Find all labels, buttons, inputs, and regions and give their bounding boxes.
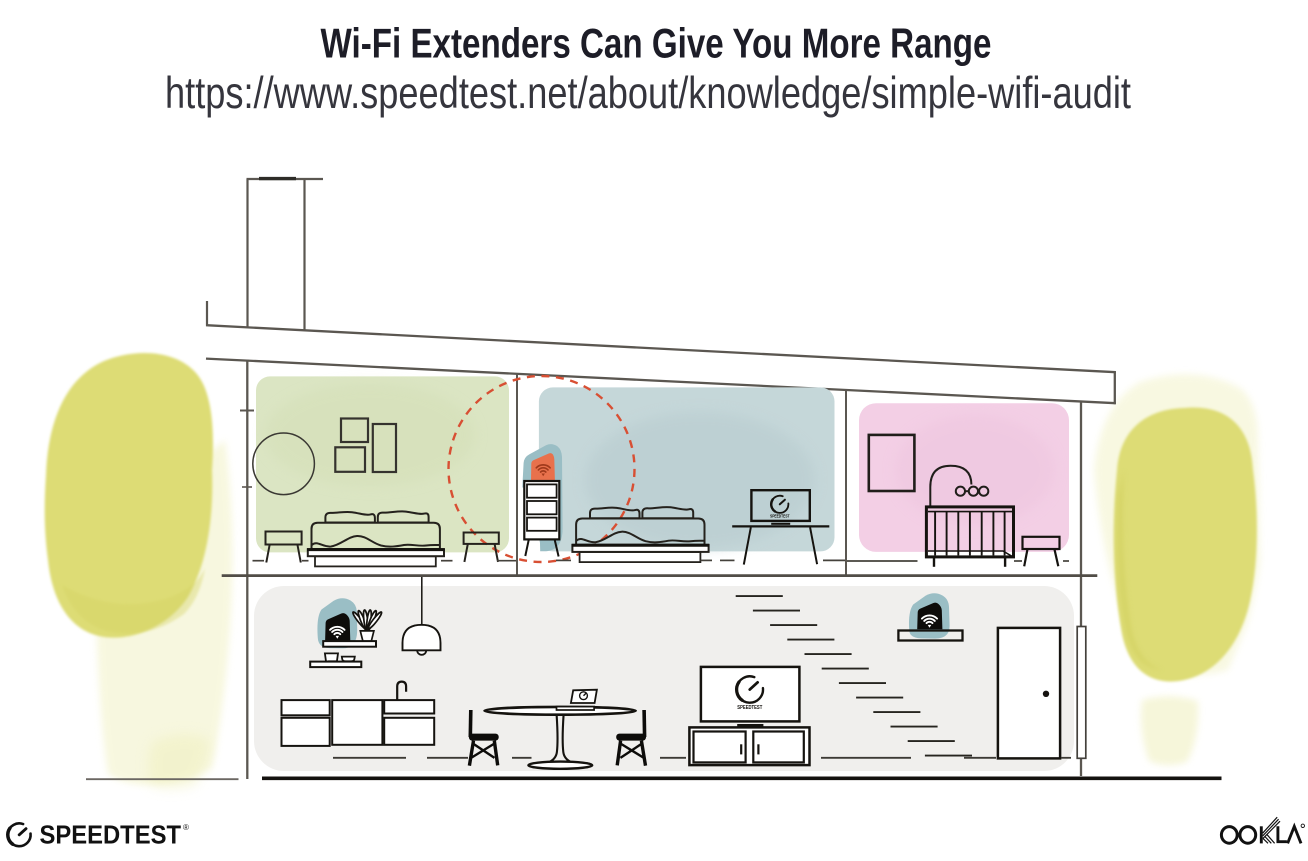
svg-text:Wi-Fi Extenders Can Give You M: Wi-Fi Extenders Can Give You More Range [321, 19, 992, 66]
svg-text:SPEEDTEST: SPEEDTEST [40, 819, 182, 849]
svg-text:®: ® [183, 823, 189, 832]
svg-text:SPEEDTEST: SPEEDTEST [770, 513, 790, 518]
svg-text:https://www.speedtest.net/abou: https://www.speedtest.net/about/knowledg… [165, 69, 1132, 118]
svg-text:SPEEDTEST: SPEEDTEST [737, 705, 762, 711]
